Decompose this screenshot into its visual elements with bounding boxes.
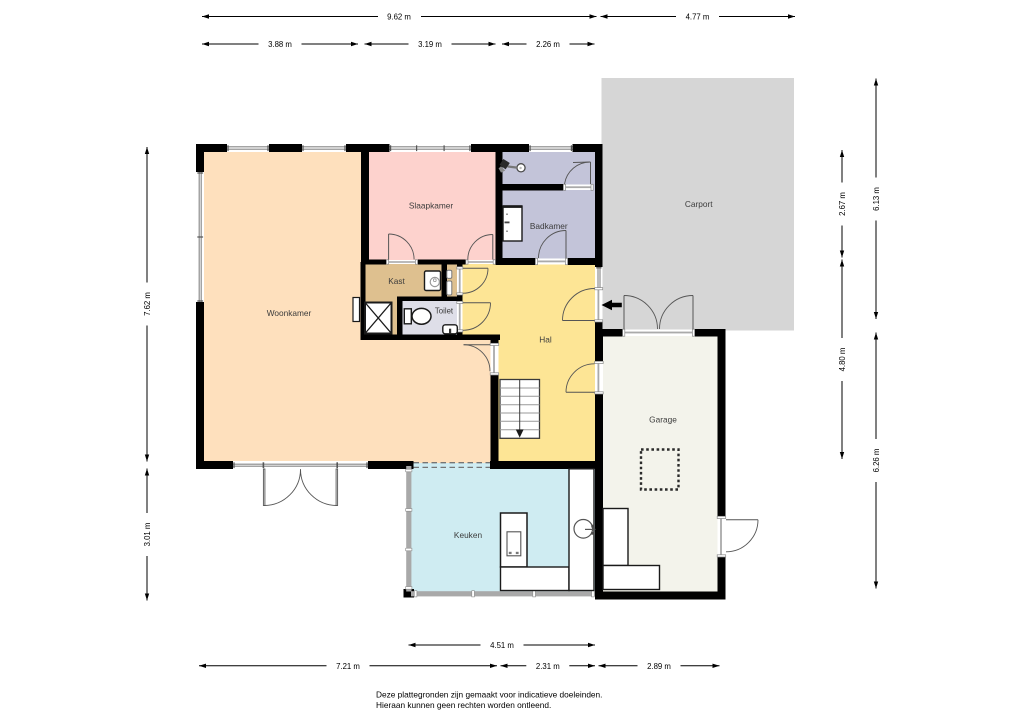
svg-text:Keuken: Keuken bbox=[454, 530, 483, 540]
svg-text:2.31 m: 2.31 m bbox=[536, 662, 560, 671]
svg-text:6.26 m: 6.26 m bbox=[872, 449, 881, 473]
svg-text:6.13 m: 6.13 m bbox=[872, 187, 881, 211]
svg-text:3.19 m: 3.19 m bbox=[418, 40, 442, 49]
svg-text:7.62 m: 7.62 m bbox=[143, 292, 152, 316]
svg-text:Badkamer: Badkamer bbox=[530, 221, 568, 231]
svg-text:Kast: Kast bbox=[388, 276, 405, 286]
svg-text:Deze plattegronden zijn gemaak: Deze plattegronden zijn gemaakt voor ind… bbox=[376, 690, 602, 700]
svg-text:7.21 m: 7.21 m bbox=[336, 662, 360, 671]
svg-text:2.67 m: 2.67 m bbox=[838, 192, 847, 216]
svg-text:Hal: Hal bbox=[539, 335, 552, 345]
svg-text:4.80 m: 4.80 m bbox=[838, 348, 847, 372]
svg-text:Woonkamer: Woonkamer bbox=[267, 308, 312, 318]
svg-text:Slaapkamer: Slaapkamer bbox=[409, 201, 454, 211]
svg-text:Carport: Carport bbox=[685, 199, 713, 209]
svg-text:4.77 m: 4.77 m bbox=[686, 13, 710, 22]
svg-text:Garage: Garage bbox=[649, 415, 677, 425]
svg-text:2.89 m: 2.89 m bbox=[647, 662, 671, 671]
svg-text:3.88 m: 3.88 m bbox=[268, 40, 292, 49]
svg-text:4.51 m: 4.51 m bbox=[490, 641, 514, 650]
svg-text:Hieraan kunnen geen rechten wo: Hieraan kunnen geen rechten worden ontle… bbox=[376, 700, 551, 710]
svg-text:3.01 m: 3.01 m bbox=[143, 523, 152, 547]
svg-text:9.62 m: 9.62 m bbox=[387, 13, 411, 22]
svg-text:Toilet: Toilet bbox=[435, 307, 454, 316]
svg-text:2.26 m: 2.26 m bbox=[536, 40, 560, 49]
